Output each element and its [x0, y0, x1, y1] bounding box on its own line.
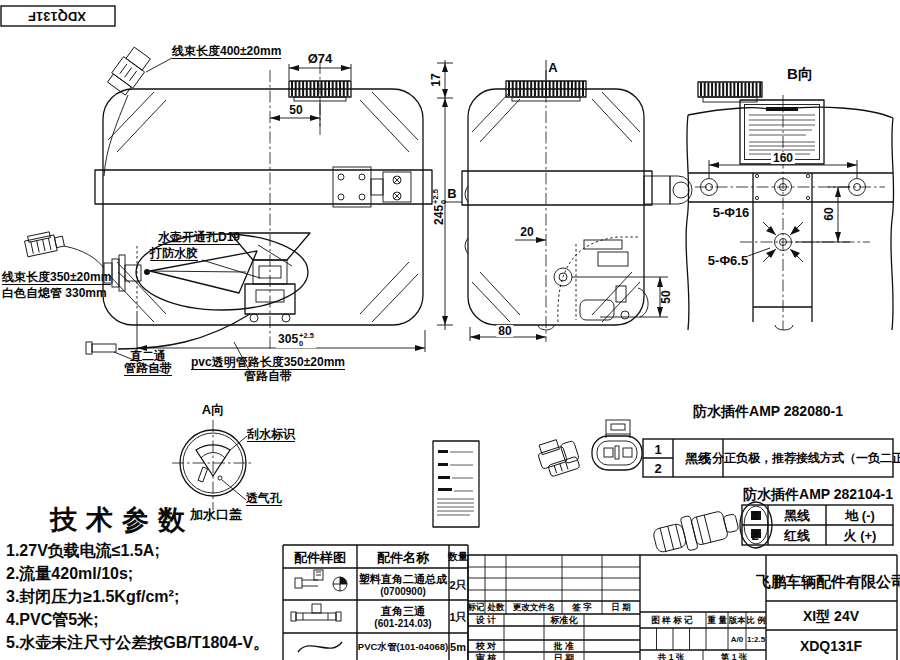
elbow-fitting-icon — [295, 570, 347, 591]
scale-value: 1:2.5 — [747, 636, 765, 644]
tech-param-item-1: 1.27V负载电流≤1.5A; — [6, 543, 160, 559]
rev-col-mark: 标记 — [468, 603, 485, 612]
side-dim-20: 20 — [520, 226, 533, 238]
front-view-linework — [24, 45, 432, 374]
section-marker-a: A — [548, 61, 557, 74]
hole-label: 水壶开通孔D19 — [158, 231, 240, 245]
rev-col-date: 日 期 — [611, 603, 630, 612]
height-dim-tolerance: +2.50 — [432, 189, 448, 204]
connector2-row2-wire: 红线 — [784, 529, 810, 542]
connector2-row1-pin: 1 — [751, 509, 758, 522]
tech-param-item-5: 5.水壶未注尺寸公差按GB/T1804-V。 — [6, 635, 269, 651]
cap-height-dim: 17 — [430, 73, 442, 86]
date-label: 日 期 — [554, 654, 575, 660]
version-value: A/0 — [731, 636, 743, 644]
filler-cap-label: 加水口盖 — [190, 508, 242, 521]
height-dim: 245+2.50 — [432, 189, 448, 225]
fold-label: XDQ131F — [28, 10, 86, 23]
tech-param-item-3: 3.封闭压力≥1.5Kgf/cm²; — [6, 589, 179, 605]
sheet-index: 第 1 张 — [721, 653, 747, 660]
pvc-label-line1: pvc透明管路长度350±20mm — [191, 356, 345, 370]
connector2-row1-wire: 黑线 — [784, 509, 810, 522]
b-view-title: B向 — [787, 66, 813, 81]
vent-hole-label: 透气孔 — [246, 492, 282, 506]
side-dim-50: 50 — [660, 290, 672, 303]
width-tol-lower: 0 — [299, 340, 314, 348]
harness-left-label: 线束长度350±20mm — [2, 271, 111, 285]
a-view-linework — [172, 420, 254, 510]
mark-header: 图 样 标 记 — [651, 616, 692, 625]
parts-row1-qty: 2只 — [449, 580, 466, 591]
width-dim-value: 305 — [278, 332, 298, 346]
drawing-number: XDQ131F — [800, 639, 862, 653]
weight-header: 重 量 — [707, 616, 726, 625]
wiper-mark-label: 刮水标识 — [247, 428, 295, 442]
connector1-icons — [535, 420, 642, 479]
connector1-note: 不分正负极，推荐接线方式（一负二正） — [700, 452, 900, 464]
fitting-label-line2: 管路自带 — [124, 362, 172, 376]
design-label: 设 计 — [476, 616, 497, 625]
model-designation: XI型 24V — [803, 609, 859, 623]
tech-param-item-2: 2.流量420ml/10s; — [6, 566, 133, 582]
company-name: 飞鹏车辆配件有限公司 — [756, 574, 900, 589]
parts-header-name: 配件名称 — [377, 551, 429, 564]
width-dim-tolerance: +2.50 — [299, 332, 314, 348]
standard-label: 标准化 — [551, 616, 578, 625]
side-dim-80: 80 — [496, 325, 513, 337]
parts-row2-name: 直角三通 — [381, 606, 425, 617]
parts-header-sample: 配件样图 — [294, 551, 346, 564]
parts-row2-qty: 1只 — [449, 612, 466, 623]
tech-param-item-4: 4.PVC管5米; — [6, 612, 98, 628]
width-dim: 305+2.50 — [276, 332, 316, 348]
drawing-sheet: XDQ131F 线束长度400±20mm Ø74 50 17 245+2.50 … — [0, 0, 900, 660]
approve-label: 批 准 — [554, 642, 575, 651]
harness-top-label: 线束长度400±20mm — [172, 45, 281, 59]
form-sticker — [433, 441, 479, 527]
height-dim-value: 245 — [432, 205, 446, 225]
scale-header: 比 例 — [746, 616, 765, 625]
rev-col-sign: 签 字 — [572, 603, 591, 612]
pvc-label-line2: 管路自带 — [244, 370, 292, 382]
b-holes-65-label: 5-Φ6.5 — [708, 254, 748, 267]
connector1-title: 防水插件AMP 282080-1 — [693, 404, 843, 418]
audit-label: 审 核 — [476, 654, 497, 660]
parts-row1-name: 塑料直角二通总成 — [359, 574, 447, 585]
b-dim-160: 160 — [771, 152, 795, 164]
check-label: 校 对 — [476, 642, 497, 651]
tube-label: 白色自熄管 330mm — [2, 287, 107, 299]
b-dim-60: 60 — [823, 207, 835, 220]
rev-col-file: 更改文件名 — [513, 603, 556, 612]
parts-row2-code: (601-214.03) — [374, 619, 431, 629]
parts-table-icons — [291, 570, 347, 652]
cap-offset-dim: 50 — [289, 104, 302, 116]
rev-col-count: 处数 — [488, 603, 505, 612]
parts-row3-qty: 5m — [450, 642, 466, 653]
connector2-row2-pin: 2 — [751, 529, 758, 542]
section-marker-b: B — [447, 187, 456, 200]
connector2-row2-desc: 火 (+) — [844, 529, 877, 542]
connector2-row1-desc: 地 (-) — [845, 509, 875, 522]
connector2-title: 防水插件AMP 282104-1 — [743, 487, 893, 501]
connector1-pin2: 2 — [654, 462, 661, 475]
connector1-pin1: 1 — [654, 443, 661, 456]
b-holes-16-label: 5-Φ16 — [713, 206, 750, 219]
version-header: 版本 — [729, 616, 746, 625]
sheets-total: 共 1 张 — [658, 653, 684, 660]
tee-fitting-icon — [291, 604, 341, 621]
pvc-hose-icon — [298, 642, 342, 652]
parts-row3-name: PVC水管(101-04068) — [358, 642, 448, 652]
cap-dia-dim: Ø74 — [308, 52, 333, 65]
a-view-title: A向 — [202, 403, 224, 416]
seal-label: 打防水胶 — [150, 247, 198, 261]
tech-params-title: 技术参数 — [50, 507, 194, 534]
parts-row1-code: (0700900) — [380, 587, 426, 597]
parts-header-qty: 数量 — [448, 552, 468, 562]
side-view-linework — [444, 60, 692, 342]
